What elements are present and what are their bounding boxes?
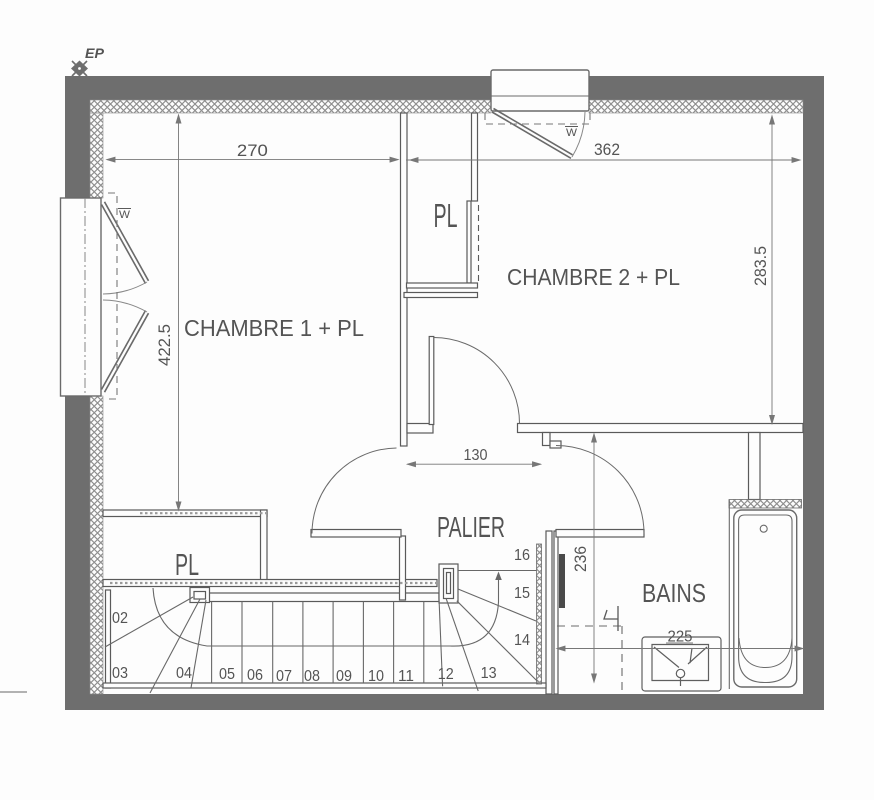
svg-text:362: 362 <box>594 140 620 159</box>
svg-text:02: 02 <box>112 610 128 627</box>
svg-text:270: 270 <box>237 141 268 160</box>
svg-text:09: 09 <box>336 668 352 685</box>
svg-text:236: 236 <box>571 546 590 572</box>
svg-text:130: 130 <box>464 447 488 464</box>
svg-text:07: 07 <box>276 668 292 685</box>
svg-text:PL: PL <box>434 197 458 234</box>
svg-text:12: 12 <box>438 666 454 683</box>
svg-text:W: W <box>119 209 131 221</box>
svg-text:EP: EP <box>85 45 105 61</box>
svg-text:CHAMBRE 2 + PL: CHAMBRE 2 + PL <box>507 264 680 290</box>
svg-text:08: 08 <box>304 668 320 685</box>
svg-text:06: 06 <box>247 667 263 684</box>
svg-text:16: 16 <box>514 547 530 564</box>
svg-text:05: 05 <box>219 666 235 683</box>
svg-text:W: W <box>566 127 578 139</box>
svg-text:15: 15 <box>514 585 530 602</box>
svg-text:CHAMBRE 1 + PL: CHAMBRE 1 + PL <box>184 315 364 341</box>
svg-text:03: 03 <box>112 665 128 682</box>
svg-text:04: 04 <box>176 665 192 682</box>
svg-text:283.5: 283.5 <box>751 246 770 286</box>
svg-text:PL: PL <box>175 547 199 582</box>
svg-text:BAINS: BAINS <box>642 578 706 608</box>
svg-text:13: 13 <box>481 665 497 682</box>
svg-text:PALIER: PALIER <box>437 512 505 544</box>
svg-text:14: 14 <box>514 632 530 649</box>
svg-text:10: 10 <box>368 668 384 685</box>
svg-text:422.5: 422.5 <box>155 324 174 366</box>
svg-text:11: 11 <box>398 668 414 685</box>
